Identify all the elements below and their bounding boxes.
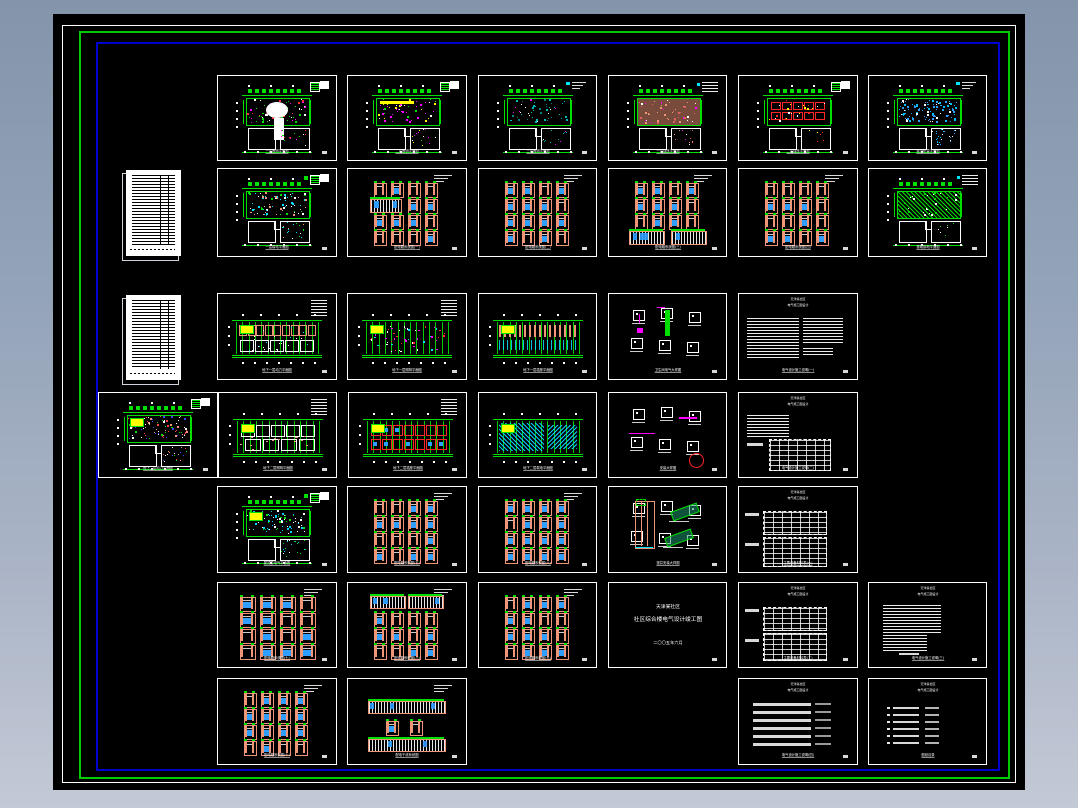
drawing-sheet-r4c2[interactable]: 地下二层插座平面图	[348, 392, 467, 478]
plan-symbol	[938, 103, 939, 104]
plan-symbol	[914, 106, 916, 108]
drawing-sheet-r1c4[interactable]: 一层插座平面图	[608, 75, 727, 161]
plan-symbol	[303, 134, 304, 135]
dim-tick	[372, 314, 374, 316]
panel-cap	[556, 499, 559, 501]
drawing-sheet-r1c6[interactable]: 屋顶防雷平面图	[868, 75, 987, 161]
legend-key-block	[501, 325, 515, 334]
plan-symbol	[256, 121, 257, 122]
drawing-sheet-r7c6[interactable]: 天津某社区电气施工图设计图纸目录	[868, 678, 987, 765]
wire-line	[679, 417, 697, 419]
panel-cap	[513, 515, 516, 517]
plan-symbol	[287, 541, 288, 542]
plan-symbol	[953, 111, 955, 113]
panel-cap	[547, 181, 550, 183]
plan-symbol	[289, 116, 290, 117]
plan-symbol	[927, 195, 928, 196]
plan-symbol	[295, 521, 296, 522]
drawing-sheet-r4c0[interactable]: 地下二层动力平面图	[98, 392, 218, 478]
panel-cap	[530, 611, 533, 613]
panel-fill	[633, 233, 637, 240]
dim-tick	[117, 443, 119, 445]
panel-side	[286, 726, 288, 737]
panel-cap	[416, 229, 419, 231]
plan-symbol	[955, 107, 957, 109]
legend-note	[311, 300, 327, 316]
plan-outline	[493, 456, 583, 457]
column-bubble	[276, 89, 280, 93]
dim-tick	[757, 126, 759, 128]
plan-symbol	[291, 327, 292, 328]
panel-cap	[629, 229, 663, 231]
panel-line	[298, 712, 303, 713]
dim-tick	[960, 151, 962, 153]
panel-side	[433, 630, 435, 641]
panel-cap	[539, 547, 542, 549]
plan-symbol	[401, 105, 402, 106]
panel-fill	[264, 698, 269, 704]
titleblock-icon	[566, 82, 570, 85]
plan-symbol	[561, 118, 562, 119]
panel-fill	[819, 236, 824, 242]
plan-symbol	[940, 137, 941, 138]
panel-side	[416, 216, 418, 227]
plan-symbol	[954, 105, 955, 106]
panel-cap	[244, 723, 247, 725]
dim-tick	[947, 244, 949, 246]
dim-tick	[236, 537, 238, 539]
plan-symbol	[295, 541, 296, 542]
drawing-sheet-r1c3[interactable]: 三层照明平面图	[478, 75, 597, 161]
panel-side	[394, 722, 396, 733]
plan-symbol	[661, 105, 662, 106]
plan-symbol	[544, 99, 546, 101]
dim-tick	[422, 85, 424, 87]
plan-symbol	[908, 208, 909, 209]
panel-cap	[252, 707, 255, 709]
column-bubble	[276, 182, 280, 186]
panel-line	[525, 186, 530, 187]
text-line	[815, 735, 831, 737]
drawing-sheet-r4c5[interactable]: 天津某社区电气施工图设计电气设计施工说明(二)	[738, 392, 858, 478]
drawing-sheet-r5c2[interactable]: 配电箱系统图(五)	[347, 486, 467, 573]
plan-symbol	[176, 430, 177, 431]
detail-callout-circle	[689, 453, 704, 468]
plan-symbol	[295, 119, 296, 120]
dim-tick	[557, 314, 559, 316]
drawing-sheet-r7c1[interactable]: 配电箱系统图(十)	[217, 678, 337, 765]
panel-side	[564, 216, 566, 227]
panel-line	[638, 218, 643, 219]
plan-symbol	[687, 120, 688, 121]
panel-side	[291, 630, 293, 641]
drawing-sheet-r3c3[interactable]: 地下一层插座平面图	[478, 293, 597, 380]
panel-side	[547, 550, 549, 561]
dim-tick	[390, 314, 392, 316]
titleblock-icon	[450, 81, 459, 89]
dim-tick	[242, 314, 244, 316]
plan-symbol	[264, 206, 265, 207]
plan-symbol	[657, 112, 658, 113]
plan-symbol	[304, 549, 305, 550]
plan-symbol	[955, 194, 957, 196]
plan-symbol	[933, 194, 934, 195]
column-bubble	[427, 89, 431, 93]
drawing-sheet-r6c4[interactable]: 天津某社区社区综合楼电气设计竣工图二〇〇五年六月	[608, 582, 727, 668]
plan-symbol	[551, 103, 552, 104]
panel-side	[530, 614, 532, 625]
panel-cap	[505, 515, 508, 517]
panel-cap	[374, 611, 377, 613]
dim-tick	[236, 211, 238, 213]
dim-tick	[489, 344, 491, 346]
plan-symbol	[258, 196, 259, 197]
plan-symbol	[535, 106, 536, 107]
drawing-sheet-r4c3[interactable]: 地下二层弱电平面图	[478, 392, 597, 478]
plan-symbol	[423, 129, 424, 130]
column-bubble	[551, 89, 555, 93]
plan-symbol	[379, 118, 380, 119]
drawing-sheet-r3c1[interactable]: 地下一层动力平面图	[217, 293, 337, 380]
plan-symbol	[272, 206, 273, 207]
panel-side	[564, 630, 566, 641]
panel-cap	[669, 197, 672, 199]
titleblock-icon	[956, 82, 960, 85]
plan-symbol	[933, 104, 934, 105]
plan-symbol	[288, 345, 289, 346]
panel-line	[525, 632, 530, 633]
sheet-title: 主要设备材料表(一)	[784, 562, 813, 566]
sheet-number	[843, 151, 848, 154]
sheet-title: 电气设计施工说明(三)	[911, 657, 943, 661]
panel-fill	[428, 522, 433, 528]
drawing-sheet-r6c5[interactable]: 天津某社区电气施工图设计主要设备材料表(二)	[738, 582, 858, 668]
column-bubble	[290, 89, 294, 93]
drawing-sheet-r1c1[interactable]: 一层照明平面图	[217, 75, 337, 161]
plan-symbol	[900, 211, 901, 212]
dim-tick	[521, 314, 523, 316]
plan-symbol	[927, 111, 929, 113]
text-line	[753, 735, 811, 738]
panel-line	[394, 218, 399, 219]
panel-side	[564, 646, 566, 657]
dim-tick	[791, 85, 793, 87]
plan-symbol	[297, 552, 298, 553]
plan-symbol	[901, 114, 902, 115]
panel-cap	[790, 181, 793, 183]
dim-tick	[366, 102, 368, 104]
panel-line	[542, 536, 547, 537]
drawing-sheet-r3c5[interactable]: 天津某社区电气施工图设计电气设计施工说明(一)	[738, 293, 858, 380]
plan-symbol	[678, 117, 679, 118]
plan-symbol	[935, 203, 937, 205]
plan-symbol	[289, 552, 290, 553]
drawing-sheet-r5c1[interactable]: 屋顶层电气平面图	[217, 486, 337, 573]
plan-symbol	[423, 136, 424, 137]
plan-symbol	[155, 433, 156, 434]
plan-symbol	[564, 101, 565, 102]
panel-cap	[694, 197, 697, 199]
drawing-sheet-r2c4[interactable]: 配电箱系统图(三)	[608, 168, 727, 257]
drawing-sheet-r7c5[interactable]: 天津某社区电气施工图设计电气设计施工说明(四)	[738, 678, 858, 765]
titleblock-note	[434, 691, 444, 692]
plan-symbol	[929, 119, 930, 120]
plan-symbol	[950, 141, 951, 142]
plan-symbol	[146, 438, 147, 439]
plan-symbol	[808, 112, 810, 114]
plan-symbol	[641, 106, 642, 107]
plan-symbol	[947, 225, 948, 226]
panel-cap	[382, 181, 385, 183]
plan-symbol	[444, 335, 445, 337]
panel-cap	[295, 739, 298, 741]
panel-side	[382, 646, 384, 657]
dim-tick	[236, 126, 238, 128]
drawing-sheet-r5c5[interactable]: 天津某社区电气施工图设计主要设备材料表(一)	[738, 486, 858, 573]
sheet-header-line2: 电气施工图设计	[787, 497, 808, 500]
text-block	[883, 635, 927, 651]
drawing-sheet-r2c5[interactable]: 配电箱系统图(四)	[738, 168, 858, 257]
panel-line	[428, 520, 433, 521]
panel-cap	[261, 739, 264, 741]
dim-tick	[129, 402, 131, 404]
drawing-sheet-r6c6[interactable]: 天津某社区电气施工图设计电气设计施工说明(三)	[868, 582, 987, 668]
dim-tick	[489, 335, 491, 337]
plan-symbol	[936, 109, 937, 110]
panel-fill	[559, 602, 564, 608]
plan-symbol	[249, 117, 250, 118]
column-line	[961, 193, 962, 217]
text-line	[815, 743, 831, 745]
dim-tick	[551, 461, 553, 463]
dim-tick	[757, 118, 759, 120]
panel-cap	[408, 499, 411, 501]
dim-tick	[553, 85, 555, 87]
sheet-header-line1: 天津某社区	[790, 491, 805, 494]
plan-symbol	[277, 528, 278, 529]
plan-symbol	[132, 435, 133, 436]
column-line	[571, 100, 572, 124]
plan-symbol	[406, 112, 407, 113]
plan-symbol	[911, 113, 912, 114]
plan-symbol	[251, 437, 253, 438]
drawing-sheet-r1c2[interactable]: 二层照明平面图	[347, 75, 467, 161]
panel-cap	[433, 229, 436, 231]
plan-symbol	[779, 120, 781, 122]
panel-line	[247, 696, 252, 697]
plan-symbol	[129, 438, 130, 439]
plan-symbol	[952, 136, 953, 137]
dim-tick	[757, 110, 759, 112]
titleblock-note	[962, 175, 978, 187]
plan-symbol	[530, 99, 532, 101]
plan-symbol	[916, 113, 918, 115]
plan-symbol	[268, 529, 269, 530]
plan-symbol	[281, 136, 282, 137]
detail-label	[660, 420, 673, 421]
drawing-sheet-r7c2[interactable]: 配电干线系统图	[347, 678, 467, 765]
plan-symbol	[162, 420, 163, 421]
panel-cap	[433, 643, 436, 645]
plan-symbol	[280, 199, 281, 200]
panel-line	[377, 218, 382, 219]
panel-line	[508, 186, 513, 187]
dim-tick	[947, 151, 949, 153]
plan-symbol	[519, 111, 520, 112]
column-bubble	[262, 89, 266, 93]
plan-symbol	[264, 105, 265, 106]
panel-cap	[271, 611, 274, 613]
panel-cap	[505, 547, 508, 549]
plan-symbol	[936, 106, 938, 108]
panel-cap	[765, 197, 768, 199]
panel-line	[263, 632, 271, 633]
shaft-line	[647, 502, 648, 546]
panel-side	[513, 598, 515, 609]
panel-side	[252, 726, 254, 737]
drawing-sheet-r2c2[interactable]: 配电箱系统图(一)	[347, 168, 467, 257]
titleblock-icon	[201, 398, 210, 406]
plan-symbol	[685, 139, 686, 140]
sheet-title: 地下二层照明平面图	[263, 467, 293, 471]
plan-symbol	[934, 192, 936, 194]
column-bubble	[262, 500, 266, 504]
plan-symbol	[945, 120, 947, 122]
plan-symbol	[291, 544, 292, 545]
panel-line	[298, 696, 303, 697]
panel-side	[399, 216, 401, 227]
plan-symbol	[667, 100, 668, 101]
panel-line	[508, 648, 513, 649]
dim-tick	[385, 461, 387, 463]
plan-room	[410, 128, 440, 150]
drawing-sheet-r2c6[interactable]: 基础接地平面图	[868, 168, 987, 257]
panel-cap	[408, 515, 411, 517]
sheet-title: 二层插座平面图	[786, 150, 809, 154]
panel-fill	[428, 650, 433, 656]
plan-symbol	[251, 122, 252, 123]
dim-tick	[366, 118, 368, 120]
plan-room	[308, 325, 316, 336]
panel-line	[411, 616, 416, 617]
panel-cap	[286, 739, 289, 741]
panel-line	[638, 202, 643, 203]
plan-symbol	[254, 339, 255, 340]
plan-symbol	[513, 112, 514, 113]
plan-symbol	[301, 440, 303, 441]
plan-symbol	[791, 113, 792, 114]
panel-side	[513, 534, 515, 545]
panel-line	[508, 552, 513, 553]
drawing-sheet-r6c2[interactable]: 配电箱系统图(八)	[347, 582, 467, 668]
plan-symbol	[550, 142, 551, 143]
plan-symbol	[817, 106, 818, 107]
panel-cap	[539, 531, 542, 533]
panel-cap	[799, 181, 802, 183]
drawing-sheet-r2c3[interactable]: 配电箱系统图(二)	[478, 168, 597, 257]
drawing-sheet-r4c1[interactable]: 地下二层照明平面图	[218, 392, 337, 478]
plan-symbol	[797, 115, 798, 116]
panel-side	[564, 534, 566, 545]
plan-notch	[274, 128, 281, 137]
column-bubble	[283, 182, 287, 186]
sheet-title: 配电箱系统图(六)	[525, 562, 551, 566]
plan-symbol	[277, 510, 279, 512]
plan-symbol	[425, 113, 426, 114]
plan-symbol	[533, 110, 534, 111]
drawing-sheet-r4c4[interactable]: 安装大样图	[608, 392, 727, 478]
drawing-sheet-r5c3[interactable]: 配电箱系统图(六)	[478, 486, 597, 573]
plan-symbol	[769, 119, 770, 120]
drawing-sheet-r6c1[interactable]: 配电箱系统图(七)	[217, 582, 337, 668]
plan-symbol	[956, 102, 957, 103]
panel-cap	[505, 499, 508, 501]
panel-side	[416, 630, 418, 641]
panel-cap	[539, 181, 542, 183]
dim-tick	[497, 102, 499, 104]
plan-symbol	[949, 136, 950, 137]
plan-symbol	[295, 518, 296, 519]
plan-symbol	[641, 103, 643, 105]
panel-side	[271, 614, 273, 625]
panel-cap	[416, 531, 419, 533]
panel-side	[807, 232, 809, 243]
plan-symbol	[282, 520, 283, 521]
plan-symbol	[249, 193, 251, 195]
dim-tick	[248, 178, 250, 180]
panel-line	[264, 696, 269, 697]
panel-line	[559, 648, 564, 649]
panel-cap	[416, 213, 419, 215]
panel-cap	[556, 643, 559, 645]
panel-side	[303, 726, 305, 737]
drawing-sheet-r3c4[interactable]: 卫生间电气大样图	[608, 293, 727, 380]
document-sheet-doc-list-2[interactable]	[126, 295, 181, 380]
drawing-sheet-r3c2[interactable]: 地下一层照明平面图	[347, 293, 467, 380]
drawing-sheet-r6c3[interactable]: 配电箱系统图(九)	[478, 582, 597, 668]
panel-cap	[425, 229, 428, 231]
panel-cap	[799, 197, 802, 199]
plan-symbol	[909, 116, 910, 117]
panel-cap	[433, 627, 436, 629]
plan-symbol	[428, 118, 429, 119]
column-line	[440, 100, 441, 124]
plan-symbol	[165, 426, 166, 427]
dim-tick	[515, 362, 517, 364]
plan-symbol	[385, 338, 387, 339]
plan-symbol	[303, 332, 304, 333]
plan-symbol	[128, 418, 129, 419]
plan-symbol	[182, 434, 183, 435]
plan-symbol	[300, 519, 302, 521]
plan-symbol	[288, 231, 289, 232]
panel-fill	[411, 220, 416, 226]
plan-symbol	[408, 339, 409, 340]
plan-symbol	[639, 102, 640, 103]
plan-symbol	[168, 431, 169, 432]
drawing-sheet-r5c4[interactable]: 竖井安装大样图	[608, 486, 727, 573]
plan-symbol	[425, 326, 426, 328]
detail-label	[630, 351, 643, 352]
panel-fill	[559, 538, 564, 544]
drawing-sheet-r1c5[interactable]: 二层插座平面图	[738, 75, 858, 161]
drawing-sheet-r2c1[interactable]: 一层弱电平面图	[217, 168, 337, 257]
column-line	[243, 511, 244, 535]
plan-symbol	[290, 137, 291, 138]
column-line	[497, 421, 498, 453]
plan-symbol	[264, 349, 265, 350]
document-sheet-doc-list-1[interactable]	[126, 170, 181, 256]
